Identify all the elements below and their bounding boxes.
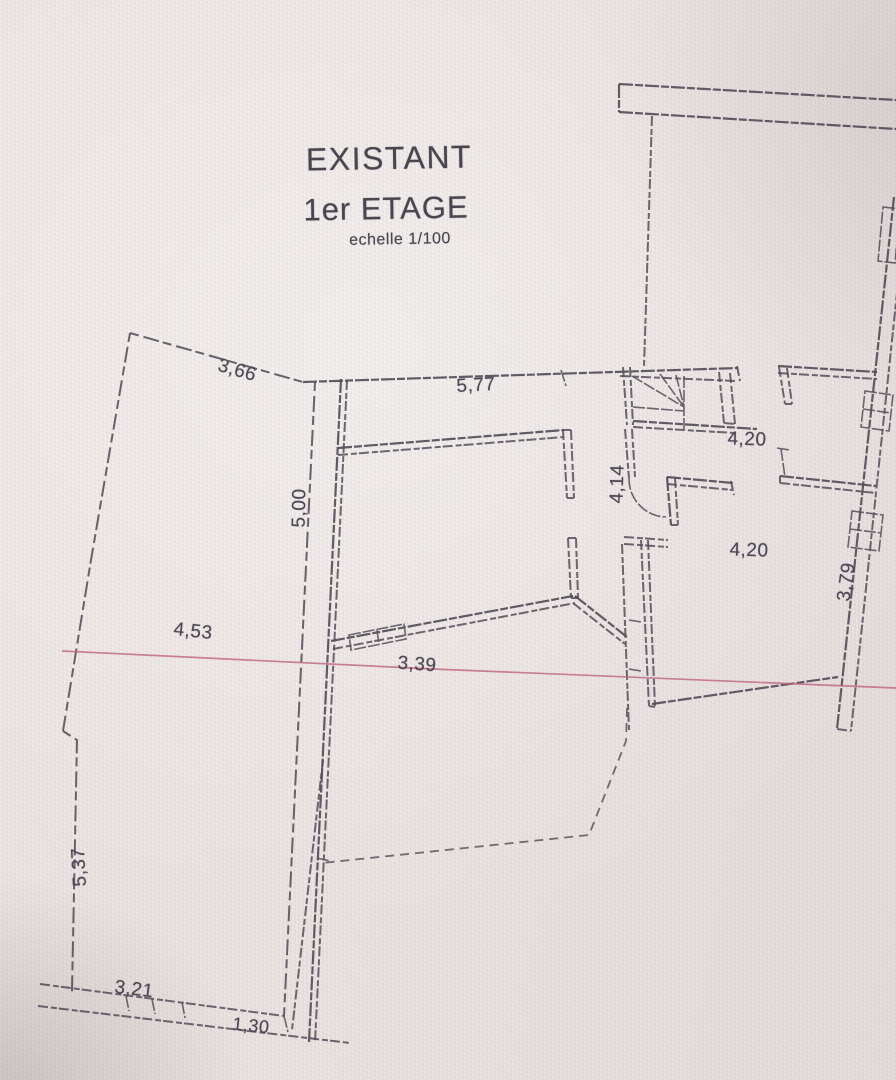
left-outer-boundary — [63, 333, 303, 992]
dimension-label-4-20-upper: 4,20 — [727, 428, 767, 451]
upper-room-left-wall — [644, 116, 652, 367]
dimension-label-5-37: 5,37 — [68, 847, 92, 887]
dimension-label-3-39: 3,39 — [397, 653, 437, 678]
floor-plan-photo: EXISTANT 1er ETAGE echelle 1/100 3,66 5,… — [0, 0, 896, 1080]
dimension-label-5-00: 5,00 — [289, 488, 312, 527]
dimension-label-1-30: 1,30 — [231, 1014, 270, 1039]
door-swing-arc — [629, 478, 666, 517]
top-main-wall — [303, 366, 740, 386]
right-partitions — [777, 366, 877, 493]
plan-title: EXISTANT — [306, 139, 473, 179]
chimney-duct — [622, 537, 668, 730]
plan-subtitle: 1er ETAGE — [303, 190, 469, 229]
right-facade-wall — [837, 197, 896, 731]
window-mid-right — [861, 391, 893, 431]
marker-line — [62, 651, 896, 688]
dimension-label-4-20-lower: 4,20 — [729, 539, 769, 562]
bottom-window-band — [38, 984, 350, 1043]
diagonal-interior-walls — [331, 596, 627, 650]
window-lower-right — [848, 511, 883, 551]
lower-room-dashed-boundary — [322, 708, 627, 863]
stair-door — [625, 429, 734, 525]
dimension-label-4-14: 4,14 — [606, 464, 629, 504]
plan-scale: echelle 1/100 — [349, 230, 451, 250]
top-band-wall — [619, 84, 896, 129]
dimension-label-4-53: 4,53 — [172, 619, 213, 645]
long-vertical-walls — [284, 379, 347, 1043]
dimension-label-3-21: 3,21 — [113, 977, 154, 1004]
interior-cross-wall — [338, 430, 578, 598]
dimension-label-5-77: 5,77 — [456, 374, 496, 398]
